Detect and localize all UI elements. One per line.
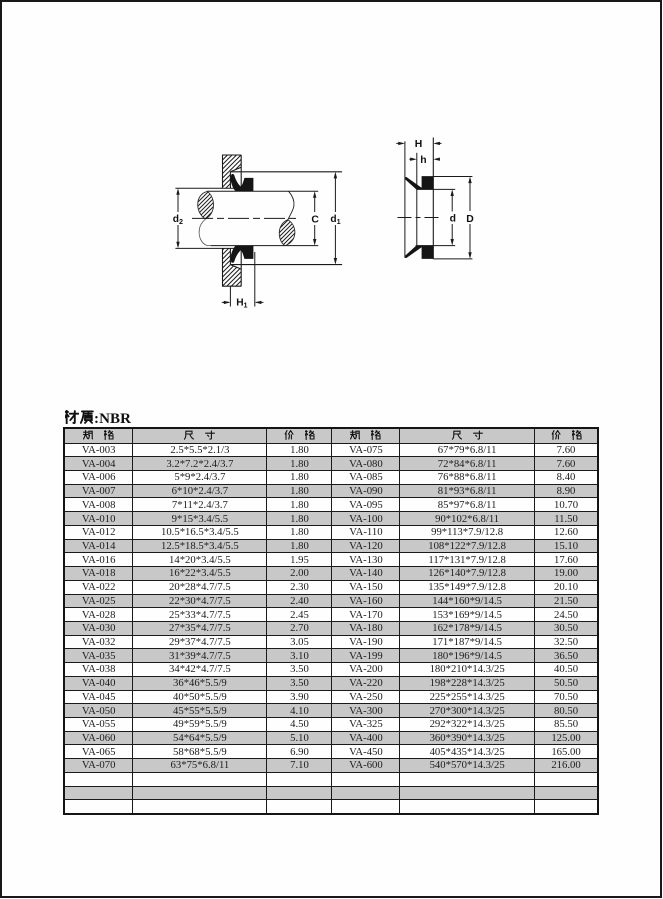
svg-text:C: C bbox=[311, 214, 319, 225]
svg-text:H1: H1 bbox=[236, 297, 247, 309]
svg-text:H: H bbox=[415, 139, 423, 150]
svg-text:d: d bbox=[450, 214, 456, 225]
svg-text:h: h bbox=[420, 155, 426, 166]
svg-text:D: D bbox=[466, 214, 474, 225]
